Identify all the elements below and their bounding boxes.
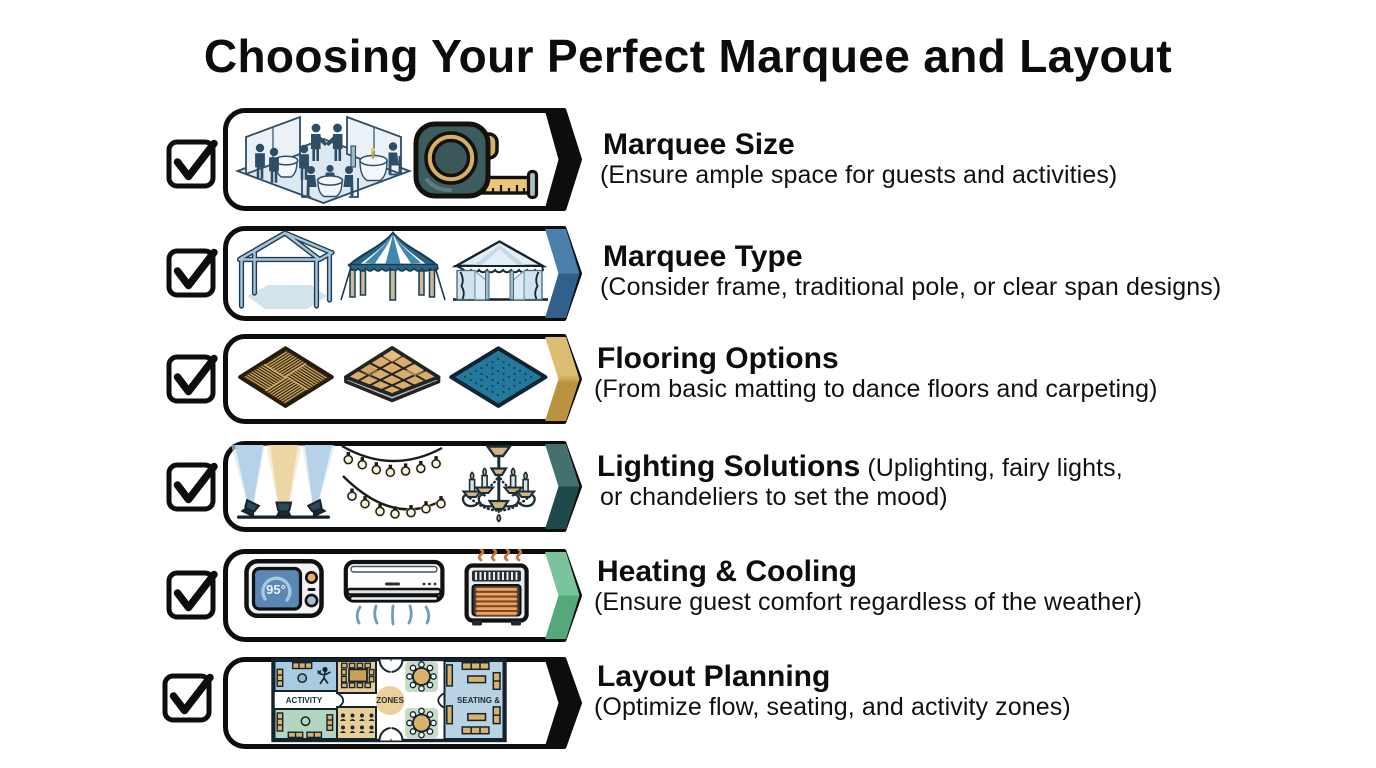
svg-text:95°: 95° [266,582,286,597]
svg-text:ACTIVITY: ACTIVITY [286,696,323,705]
svg-text:SEATING &: SEATING & [457,696,500,705]
svg-text:ZONES: ZONES [376,696,404,705]
